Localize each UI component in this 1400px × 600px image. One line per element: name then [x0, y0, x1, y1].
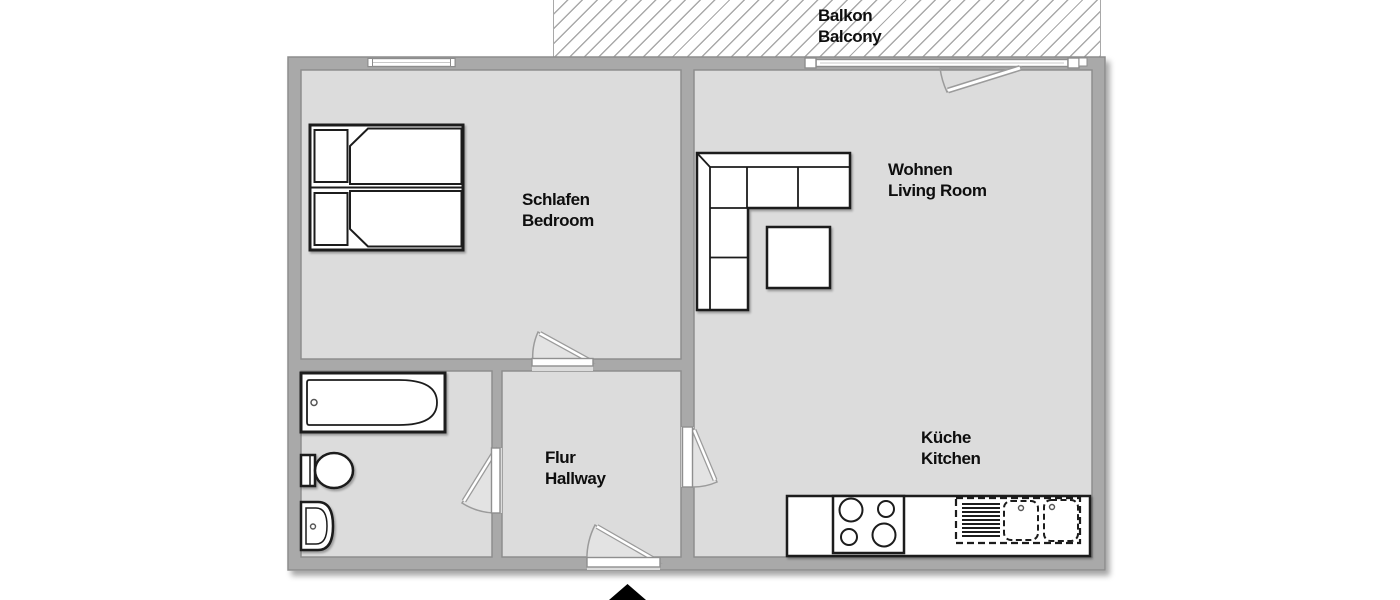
- kitchen-sink: [956, 498, 1080, 543]
- room-label-living: Wohnen Living Room: [888, 159, 987, 201]
- room-name-en: Kitchen: [921, 448, 981, 469]
- floorplan-drawing: [0, 0, 1400, 600]
- cistern: [301, 455, 315, 486]
- washbasin: [301, 502, 333, 550]
- duvet: [350, 129, 462, 185]
- drainboard: [962, 504, 1000, 536]
- door-leaf: [587, 558, 660, 568]
- room-name-de: Balkon: [818, 5, 881, 26]
- door-leaf: [492, 448, 501, 513]
- toilet: [301, 453, 353, 488]
- room-name-de: Schlafen: [522, 189, 594, 210]
- bathtub: [301, 373, 445, 432]
- door-leaf: [532, 359, 593, 367]
- drain: [311, 400, 317, 406]
- burner: [878, 501, 894, 517]
- room-label-hallway: Flur Hallway: [545, 447, 606, 489]
- room-label-kitchen: Küche Kitchen: [921, 427, 981, 469]
- room-label-balcony: Balkon Balcony: [818, 5, 881, 47]
- room-name-de: Flur: [545, 447, 606, 468]
- room-name-en: Hallway: [545, 468, 606, 489]
- room-name-de: Wohnen: [888, 159, 987, 180]
- window-bedroom: [368, 59, 455, 67]
- burner: [873, 524, 896, 547]
- tap: [311, 524, 316, 529]
- floor-living-kitchen: [694, 70, 1092, 557]
- burner: [840, 499, 863, 522]
- room-name-en: Bedroom: [522, 210, 594, 231]
- floorplan-page: Balkon Balcony Schlafen Bedroom Wohnen L…: [0, 0, 1400, 600]
- tap: [1019, 506, 1024, 511]
- room-label-bedroom: Schlafen Bedroom: [522, 189, 594, 231]
- bowl: [315, 453, 353, 488]
- room-name-de: Küche: [921, 427, 981, 448]
- kitchen-counter: [787, 496, 1090, 556]
- coffee-table: [767, 227, 830, 288]
- burner: [841, 529, 857, 545]
- pillow: [315, 130, 348, 182]
- room-name-en: Living Room: [888, 180, 987, 201]
- duvet: [350, 191, 462, 247]
- pillow: [315, 193, 348, 245]
- stove: [833, 496, 904, 553]
- window-living-balcony: [805, 58, 1087, 68]
- room-name-en: Balcony: [818, 26, 881, 47]
- door-leaf: [683, 427, 693, 487]
- bed: [310, 125, 463, 250]
- tap: [1050, 505, 1055, 510]
